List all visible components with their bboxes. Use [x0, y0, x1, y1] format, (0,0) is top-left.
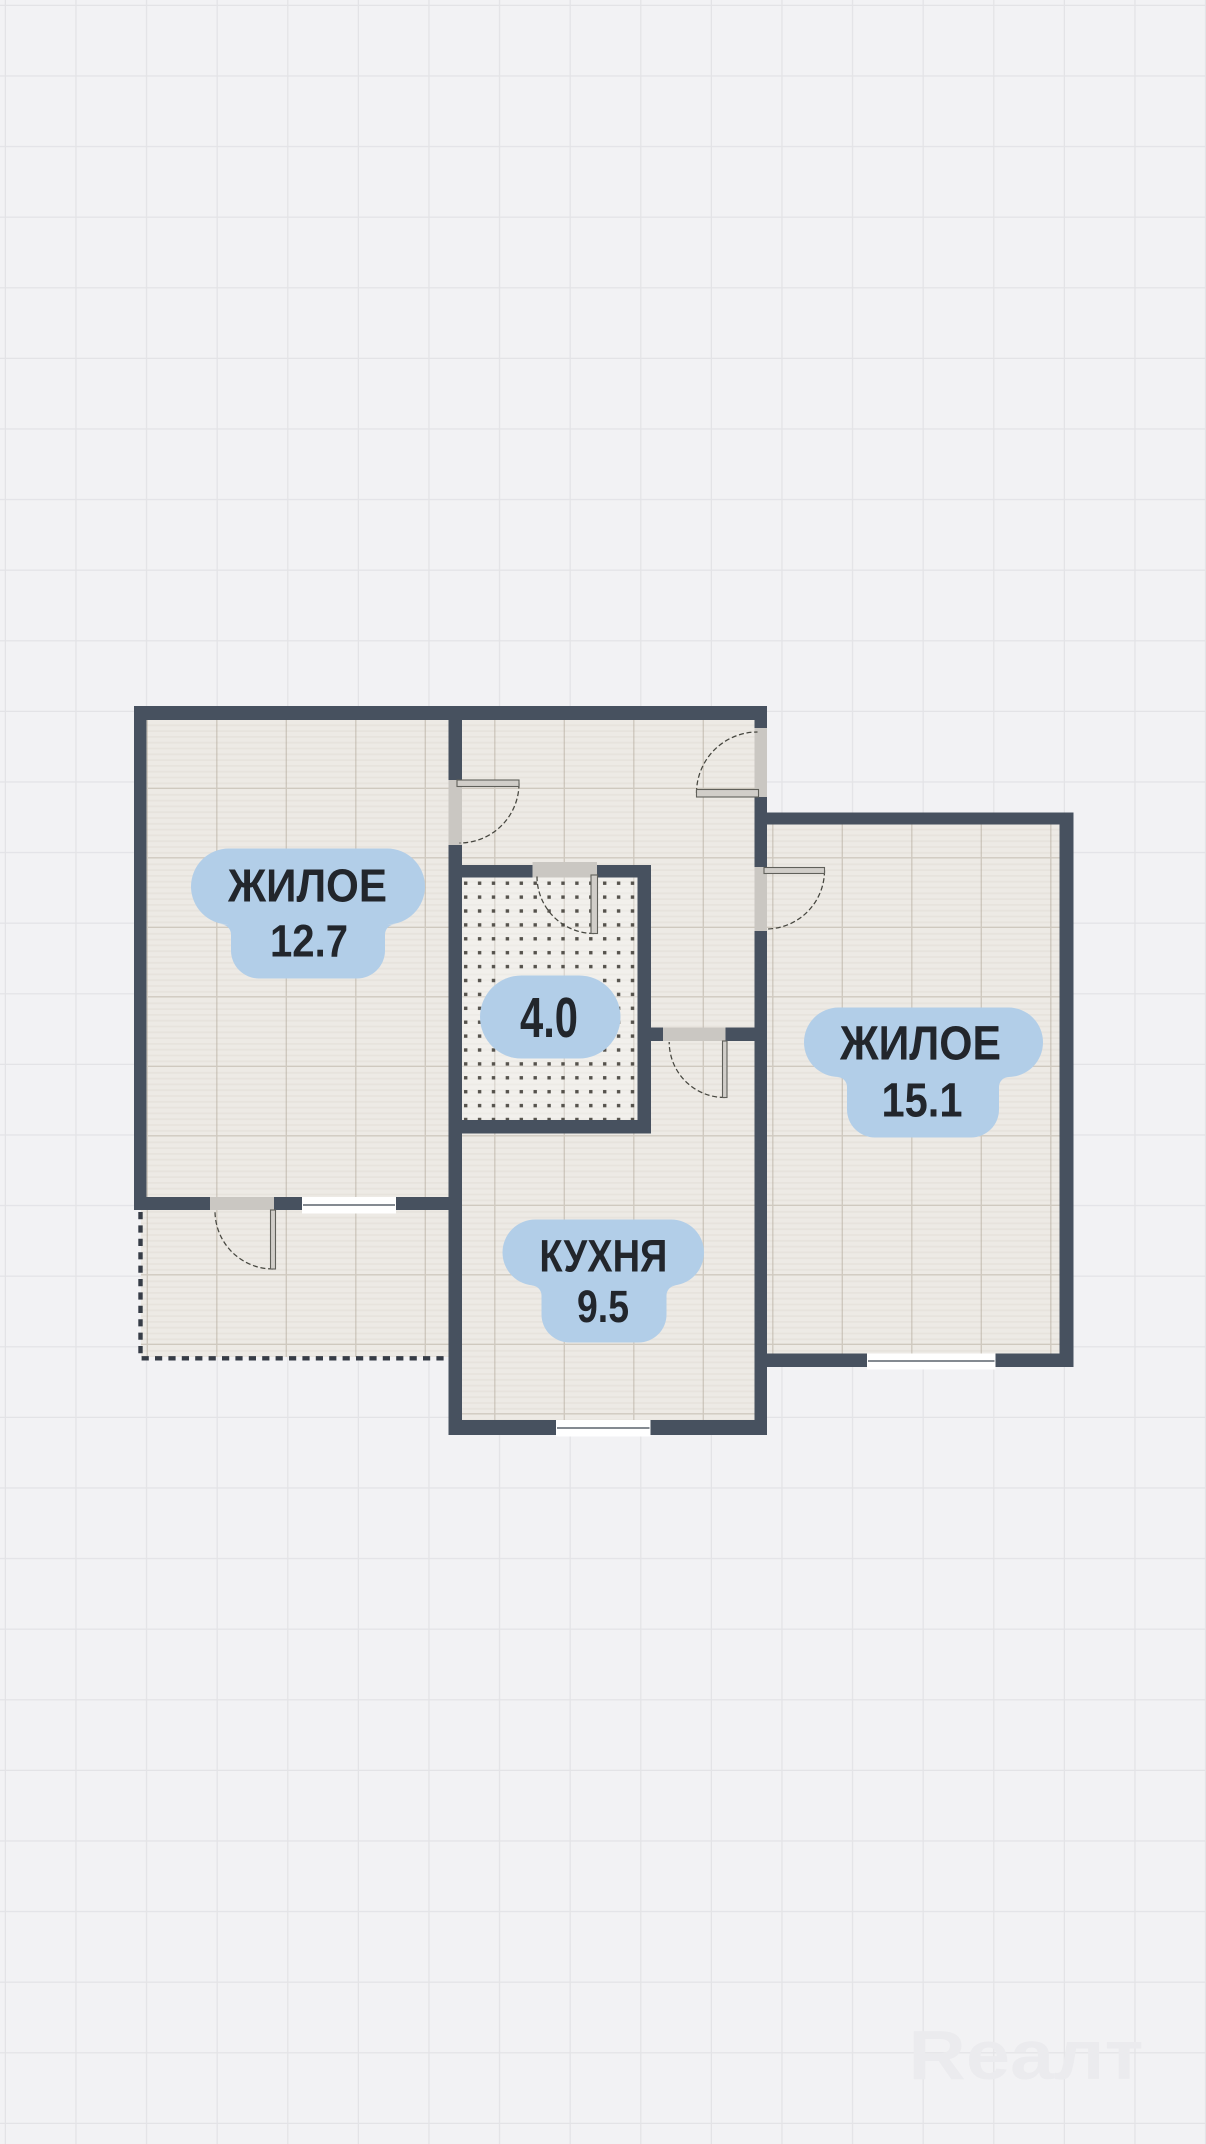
svg-text:ЖИЛОЕ: ЖИЛОЕ: [839, 1018, 1001, 1071]
svg-text:Reaлт: Reaлт: [909, 2016, 1144, 2094]
svg-text:4.0: 4.0: [520, 986, 578, 1050]
svg-text:ЖИЛОЕ: ЖИЛОЕ: [227, 860, 387, 912]
svg-text:12.7: 12.7: [270, 916, 348, 967]
svg-text:9.5: 9.5: [577, 1281, 629, 1332]
svg-text:КУХНЯ: КУХНЯ: [539, 1230, 667, 1281]
svg-text:15.1: 15.1: [882, 1075, 963, 1128]
